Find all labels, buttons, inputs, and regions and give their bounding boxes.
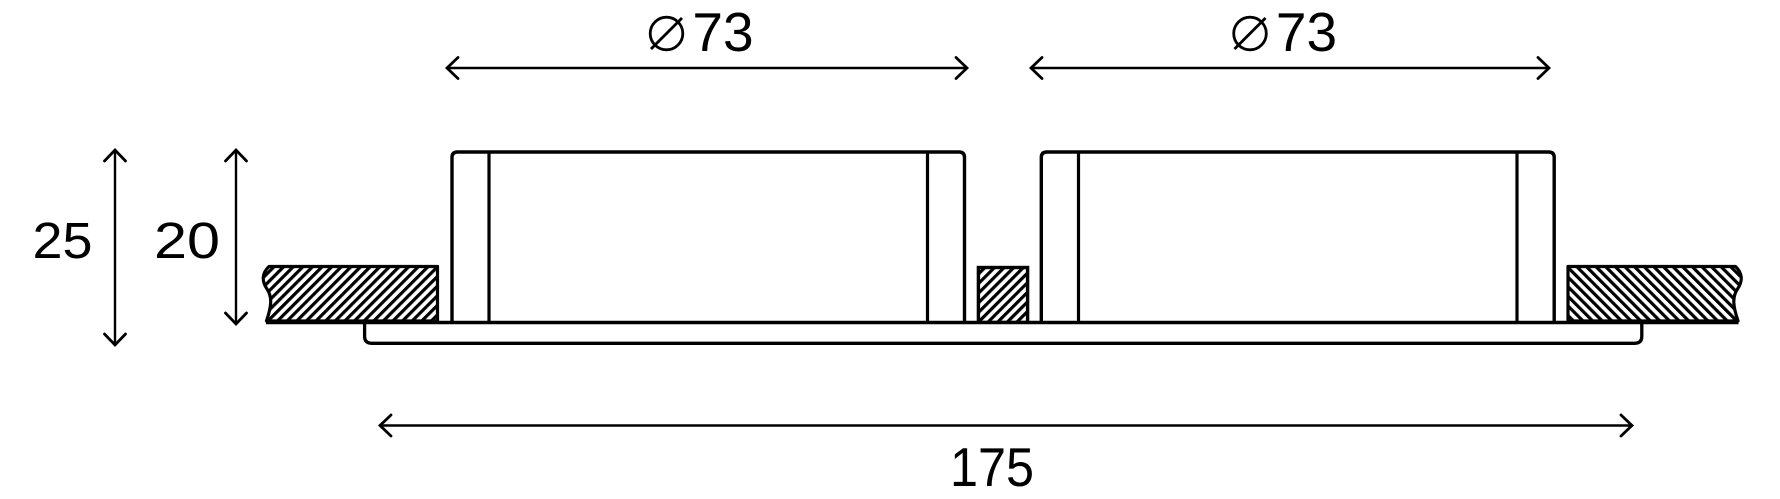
svg-text:73: 73 <box>692 1 753 63</box>
svg-text:73: 73 <box>1276 1 1337 63</box>
svg-text:175: 175 <box>950 436 1034 498</box>
svg-text:20: 20 <box>154 212 220 269</box>
svg-text:25: 25 <box>33 212 93 269</box>
